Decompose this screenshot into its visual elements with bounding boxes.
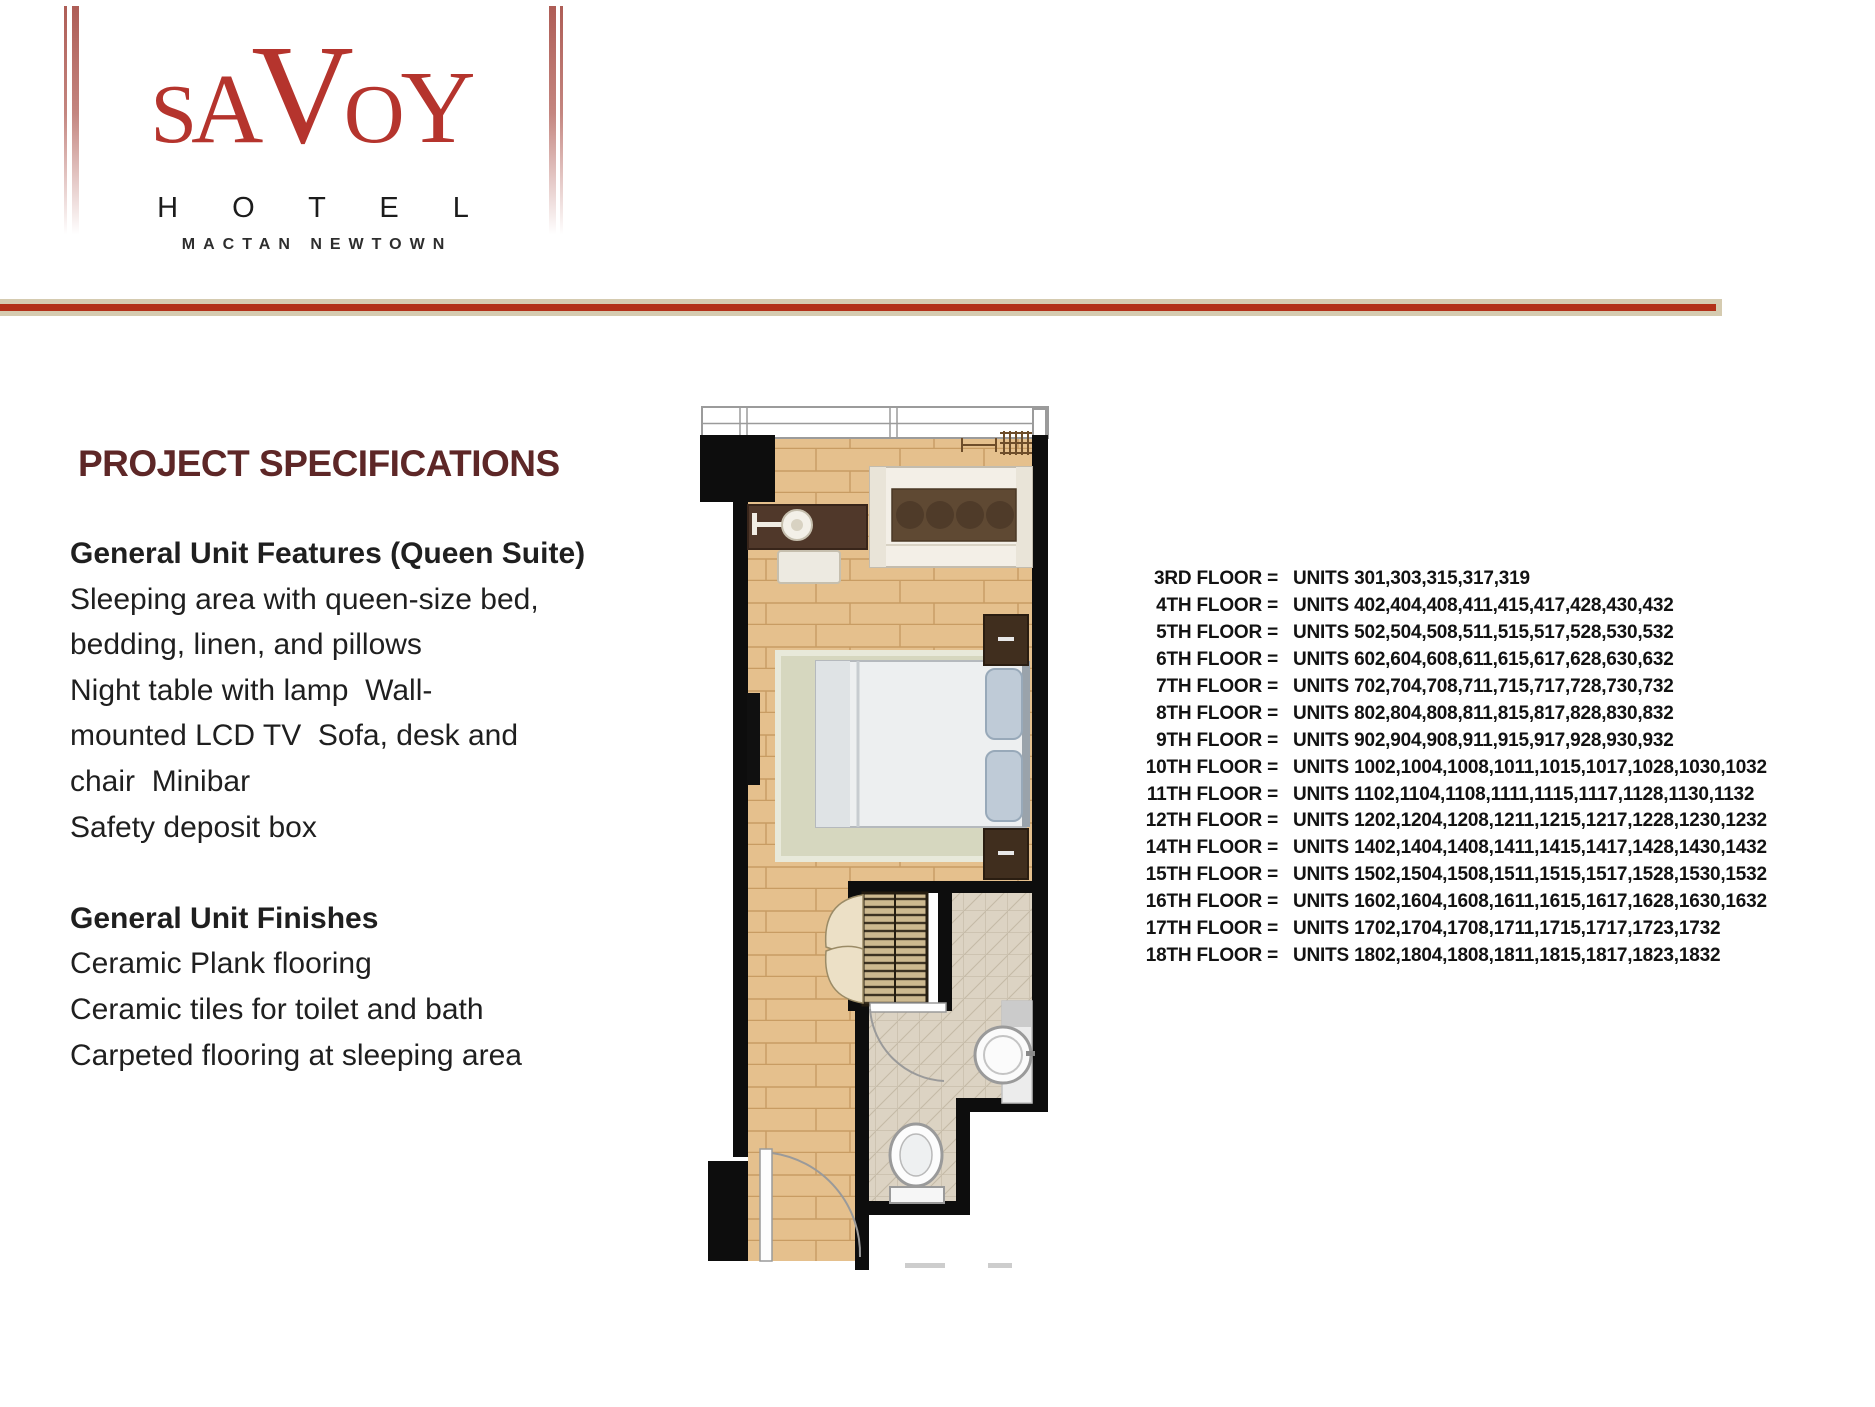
floor-label: 17TH FLOOR =: [1120, 918, 1278, 940]
sofa: [870, 467, 1032, 567]
floor-row: 14TH FLOOR = UNITS 1402,1404,1408,1411,1…: [1120, 837, 1767, 864]
wall-left: [733, 502, 748, 1157]
logo-letter: Y: [401, 51, 476, 165]
floor-units: UNITS 602,604,608,611,615,617,628,630,63…: [1293, 649, 1674, 671]
spec-line: mounted LCD TV Sofa, desk and: [70, 713, 585, 759]
floor-row: 11TH FLOOR = UNITS 1102,1104,1108,1111,1…: [1120, 784, 1767, 811]
floor-label: 14TH FLOOR =: [1120, 837, 1278, 859]
divider-red-line: [0, 304, 1716, 311]
floor-row: 6TH FLOOR = UNITS 602,604,608,611,615,61…: [1120, 649, 1767, 676]
floor-units: UNITS 702,704,708,711,715,717,728,730,73…: [1293, 676, 1674, 698]
floor-row: 12TH FLOOR = UNITS 1202,1204,1208,1211,1…: [1120, 810, 1767, 837]
floor-label: 15TH FLOOR =: [1120, 864, 1278, 886]
floor-row: 15TH FLOOR = UNITS 1502,1504,1508,1511,1…: [1120, 864, 1767, 891]
floor-units: UNITS 1602,1604,1608,1611,1615,1617,1628…: [1293, 891, 1767, 913]
wall-tv: [747, 693, 760, 785]
floor-units: UNITS 1002,1004,1008,1011,1015,1017,1028…: [1293, 757, 1767, 779]
floor-row: 4TH FLOOR = UNITS 402,404,408,411,415,41…: [1120, 595, 1767, 622]
floor-plan-drawing: [700, 405, 1056, 1270]
floor-units: UNITS 1102,1104,1108,1111,1115,1117,1128…: [1293, 784, 1754, 806]
floor-units: UNITS 802,804,808,811,815,817,828,830,83…: [1293, 703, 1674, 725]
floor-label: 12TH FLOOR =: [1120, 810, 1278, 832]
divider-rule: [0, 299, 1722, 316]
floor-units: UNITS 1202,1204,1208,1211,1215,1217,1228…: [1293, 810, 1767, 832]
floor-label: 9TH FLOOR =: [1120, 730, 1278, 752]
logo-wordmark: S A V O Y: [60, 16, 566, 172]
spec-line: Night table with lamp Wall-: [70, 668, 585, 714]
lamp-bulb: [791, 519, 803, 531]
queen-suite-floor-plan: [700, 405, 1056, 1270]
floor-label: 11TH FLOOR =: [1120, 784, 1278, 806]
wall-bath-partition: [938, 881, 952, 1011]
floor-row: 3RD FLOOR = UNITS 301,303,315,317,319: [1120, 568, 1767, 595]
pillow: [986, 669, 1022, 739]
floor-row: 8TH FLOOR = UNITS 802,804,808,811,815,81…: [1120, 703, 1767, 730]
wall-bath-lower-right: [956, 1098, 970, 1210]
floor-units: UNITS 1502,1504,1508,1511,1515,1517,1528…: [1293, 864, 1767, 886]
floor-units: UNITS 402,404,408,411,415,417,428,430,43…: [1293, 595, 1674, 617]
floor-row: 10TH FLOOR = UNITS 1002,1004,1008,1011,1…: [1120, 757, 1767, 784]
toilet-tank: [890, 1187, 944, 1203]
floor-label: 4TH FLOOR =: [1120, 595, 1278, 617]
floor-units: UNITS 1402,1404,1408,1411,1415,1417,1428…: [1293, 837, 1767, 859]
spec-line: General Unit Finishes: [70, 896, 585, 942]
toilet: [890, 1124, 944, 1203]
scan-artifacts: [905, 1263, 1012, 1268]
floor-label: 16TH FLOOR =: [1120, 891, 1278, 913]
floor-label: 10TH FLOOR =: [1120, 757, 1278, 779]
pillow: [986, 751, 1022, 821]
spec-line: Ceramic tiles for toilet and bath: [70, 987, 585, 1033]
floor-row: 17TH FLOOR = UNITS 1702,1704,1708,1711,1…: [1120, 918, 1767, 945]
floor-label: 7TH FLOOR =: [1120, 676, 1278, 698]
bed: [816, 661, 1030, 827]
floor-units: UNITS 1802,1804,1808,1811,1815,1817,1823…: [1293, 945, 1720, 967]
logo-letter: V: [251, 16, 354, 172]
wall-block-bottom-left: [708, 1161, 748, 1261]
logo-location-text: MACTAN NEWTOWN: [60, 236, 566, 254]
wall-right: [1032, 435, 1048, 1108]
floor-row: 7TH FLOOR = UNITS 702,704,708,711,715,71…: [1120, 676, 1767, 703]
floor-row: 18TH FLOOR = UNITS 1802,1804,1808,1811,1…: [1120, 945, 1767, 972]
spec-line: Sleeping area with queen-size bed,: [70, 577, 585, 623]
logo-hotel-text: H O T E L: [60, 192, 566, 225]
floor-label: 3RD FLOOR =: [1120, 568, 1278, 590]
spec-line: Safety deposit box: [70, 805, 585, 851]
floor-label: 5TH FLOOR =: [1120, 622, 1278, 644]
headboard: [1022, 661, 1030, 827]
wall-block-top-left: [700, 435, 775, 502]
logo-letter: O: [344, 69, 405, 161]
floor-label: 18TH FLOOR =: [1120, 945, 1278, 967]
savoy-hotel-logo: S A V O Y H O T E L MACTAN NEWTOWN: [60, 6, 566, 262]
spec-line: [70, 850, 585, 896]
floor-row: 16TH FLOOR = UNITS 1602,1604,1608,1611,1…: [1120, 891, 1767, 918]
closet: [826, 893, 927, 1005]
spec-line: bedding, linen, and pillows: [70, 622, 585, 668]
balcony-railing: [702, 407, 1048, 438]
floor-label: 8TH FLOOR =: [1120, 703, 1278, 725]
floor-units: UNITS 502,504,508,511,515,517,528,530,53…: [1293, 622, 1674, 644]
floor-row: 9TH FLOOR = UNITS 902,904,908,911,915,91…: [1120, 730, 1767, 757]
desk-chair: [778, 551, 840, 583]
spec-line: General Unit Features (Queen Suite): [70, 531, 585, 577]
spec-lines: General Unit Features (Queen Suite) Slee…: [70, 531, 585, 1078]
page-title: PROJECT SPECIFICATIONS: [78, 443, 560, 485]
spec-line: chair Minibar: [70, 759, 585, 805]
spec-line: Carpeted flooring at sleeping area: [70, 1033, 585, 1079]
floor-units: UNITS 902,904,908,911,915,917,928,930,93…: [1293, 730, 1674, 752]
floor-row: 5TH FLOOR = UNITS 502,504,508,511,515,51…: [1120, 622, 1767, 649]
logo-letter: S: [150, 69, 197, 161]
faucet: [1026, 1051, 1035, 1056]
floor-units: UNITS 301,303,315,317,319: [1293, 568, 1530, 590]
floor-unit-list: 3RD FLOOR = UNITS 301,303,315,317,319 4T…: [1120, 568, 1767, 972]
spec-line: Ceramic Plank flooring: [70, 941, 585, 987]
floor-units: UNITS 1702,1704,1708,1711,1715,1717,1723…: [1293, 918, 1720, 940]
floor-label: 6TH FLOOR =: [1120, 649, 1278, 671]
lamp-arm: [752, 522, 784, 527]
